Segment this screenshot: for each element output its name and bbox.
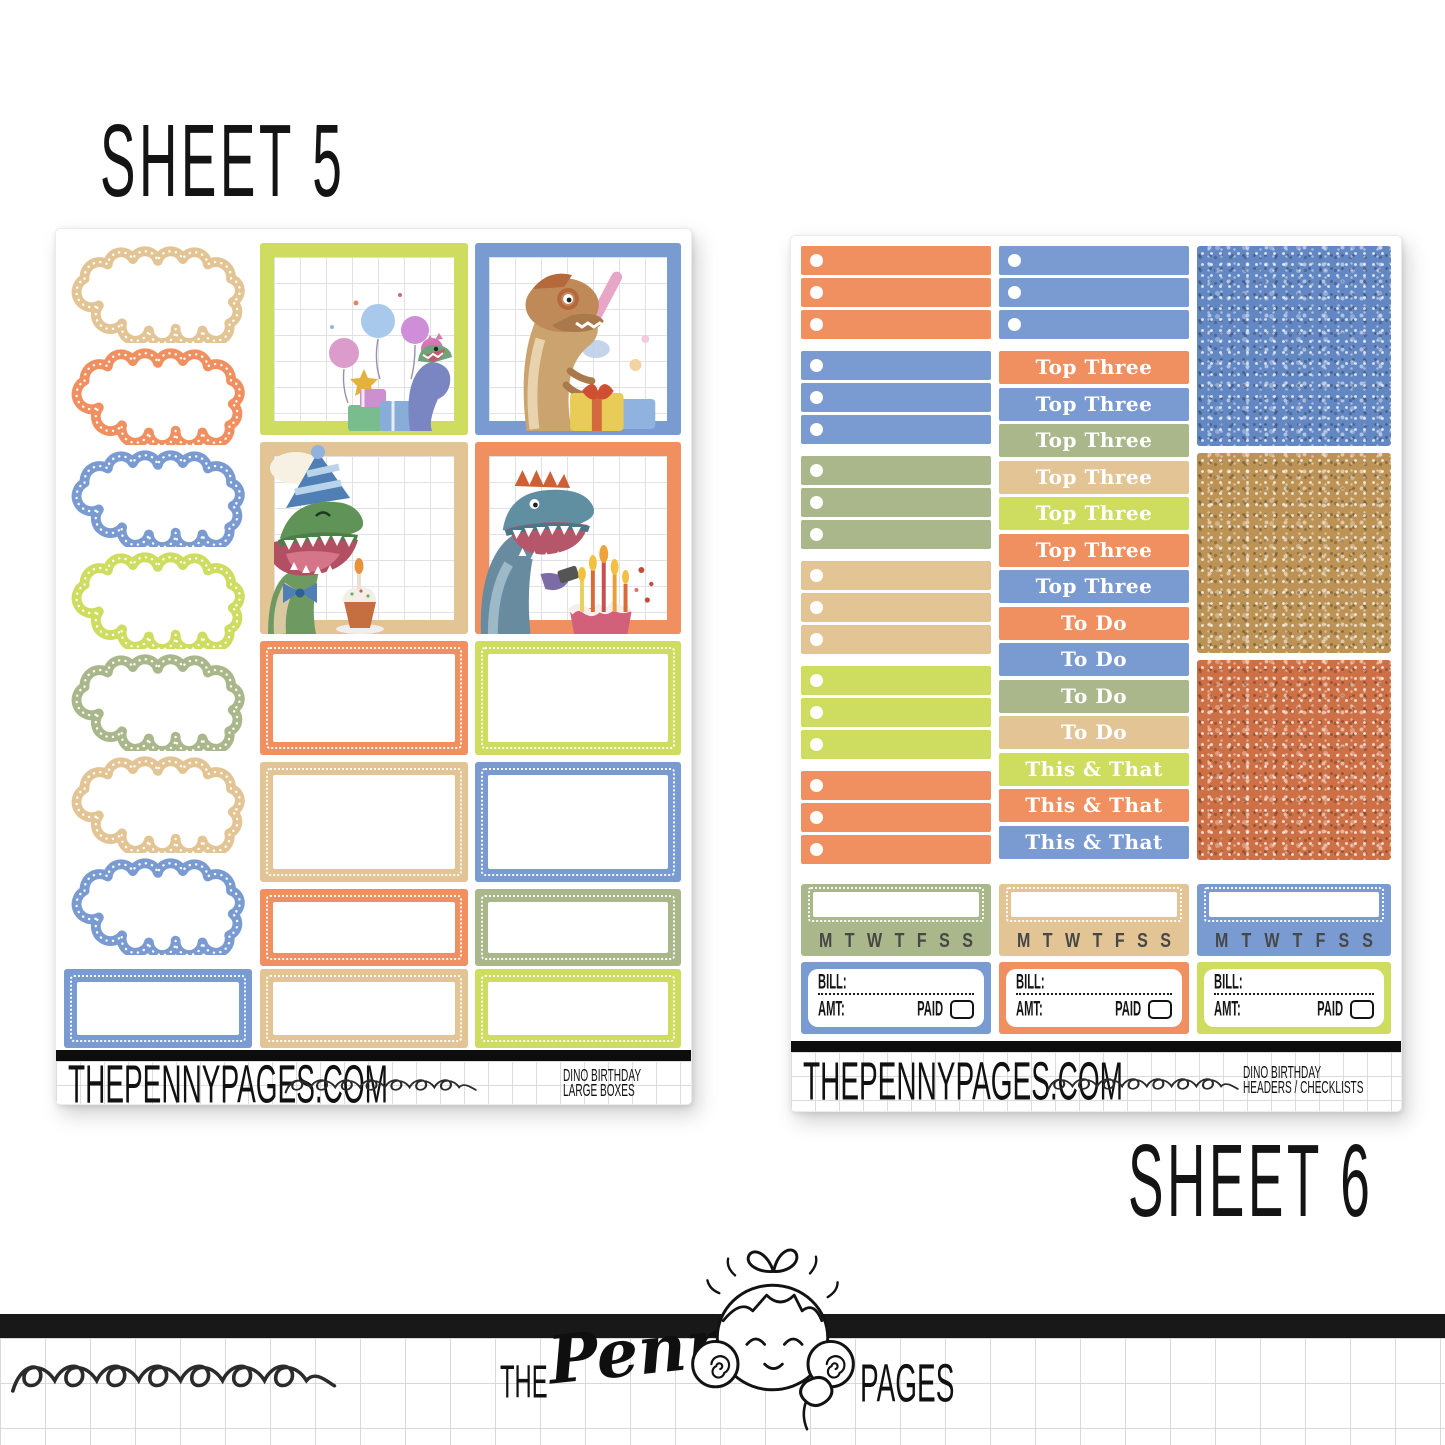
gold-glitter-sticker (1197, 453, 1391, 653)
photo-box-sticker (475, 442, 681, 634)
checklist-row (801, 351, 991, 380)
half-box-writing-area (273, 775, 455, 869)
bill-card: BILL: AMT: PAID (1006, 969, 1182, 1027)
dino-gift-art (475, 243, 681, 435)
header-sticker: To Do (999, 643, 1189, 676)
bullet-dot (810, 601, 823, 614)
checklist-row (801, 310, 991, 339)
header-sticker: This & That (999, 789, 1189, 822)
short-box-writing-area (273, 902, 455, 953)
date-writing-slot (1209, 892, 1379, 917)
half-box-writing-area (273, 654, 455, 742)
cloud-box-sticker (60, 345, 252, 445)
squiggle-doodle (10, 1352, 340, 1404)
dino-partyhat-art (260, 442, 468, 634)
blue-glitter-sticker (1197, 246, 1391, 446)
bullet-dot (810, 779, 823, 792)
checklist-row (801, 625, 991, 654)
header-sticker: Top Three (999, 388, 1189, 421)
checklist-sticker (999, 246, 1189, 339)
cloud-box-sticker (60, 243, 252, 343)
checklist-row (801, 561, 991, 590)
paid-checkbox (950, 1000, 974, 1019)
half-box-sticker (260, 641, 468, 755)
bullet-dot (810, 674, 823, 687)
header-sticker: This & That (999, 826, 1189, 859)
checklist-row (801, 698, 991, 727)
bullet-dot (810, 254, 823, 267)
bullet-dot (810, 318, 823, 331)
orange-glitter-sticker (1197, 660, 1391, 860)
bullet-dot (810, 811, 823, 824)
bill-tracker-sticker: BILL: AMT: PAID (1197, 962, 1391, 1034)
dino-cake-art (475, 442, 681, 634)
sheet5-label: SHEET 5 (100, 118, 450, 205)
checklist-row (801, 383, 991, 412)
bill-tracker-sticker: BILL: AMT: PAID (999, 962, 1189, 1034)
cloud-box-sticker (60, 753, 252, 853)
bullet-dot (810, 359, 823, 372)
bullet-dot (1008, 318, 1021, 331)
bill-label: BILL: (818, 971, 847, 995)
checklist-row (801, 771, 991, 800)
bottom-box-sticker (64, 969, 252, 1048)
header-sticker-stack: Top Three Top Three Top Three Top Three … (999, 351, 1189, 859)
bullet-dot (810, 464, 823, 477)
bill-tracker-sticker: BILL: AMT: PAID (801, 962, 991, 1034)
photo-box-sticker (260, 243, 468, 435)
checklist-row (801, 520, 991, 549)
penny-girl-doodle (686, 1232, 861, 1444)
checklist-row (801, 456, 991, 485)
paid-label: PAID (1317, 997, 1343, 1021)
cloud-box-sticker (60, 447, 252, 547)
header-sticker: To Do (999, 607, 1189, 640)
half-box-sticker (475, 641, 681, 755)
sticker-sheet-5: THEPENNYPAGES.COM DINO BIRTHDAY LARGE BO… (55, 228, 692, 1105)
half-box-writing-area (488, 654, 668, 742)
bullet-dot (810, 569, 823, 582)
date-cover-sticker: MTWTFSS (801, 884, 991, 956)
weekday-letters: MTWTFSS (1009, 933, 1179, 951)
checklist-sticker (801, 771, 991, 864)
squiggle-doodle (1046, 1072, 1241, 1098)
bullet-dot (810, 528, 823, 541)
product-image: SHEET 5 (0, 0, 1445, 1445)
bill-label: BILL: (1214, 971, 1243, 995)
bullet-dot (810, 496, 823, 509)
bottom-box-sticker (475, 969, 681, 1048)
header-sticker: This & That (999, 753, 1189, 786)
sheet-footer-bar (791, 1041, 1401, 1052)
date-cover-sticker: MTWTFSS (999, 884, 1189, 956)
amt-label: AMT: (1214, 997, 1241, 1021)
paid-label: PAID (1115, 997, 1141, 1021)
sheet-title-label: DINO BIRTHDAY HEADERS / CHECKLISTS (1243, 1065, 1393, 1095)
weekday-letters: MTWTFSS (1207, 933, 1381, 951)
dino-balloons-art (260, 243, 468, 435)
amt-label: AMT: (1016, 997, 1043, 1021)
bullet-dot (810, 423, 823, 436)
header-sticker: To Do (999, 716, 1189, 749)
short-box-sticker (260, 889, 468, 966)
paid-checkbox (1350, 1000, 1374, 1019)
checklist-row (801, 803, 991, 832)
checklist-row (801, 488, 991, 517)
header-sticker: Top Three (999, 461, 1189, 494)
checklist-sticker (801, 351, 991, 444)
cloud-box-sticker (60, 651, 252, 751)
short-box-writing-area (488, 902, 668, 953)
checklist-sticker (801, 666, 991, 759)
checklist-row (801, 278, 991, 307)
half-box-sticker (475, 762, 681, 882)
header-sticker: Top Three (999, 497, 1189, 530)
sheet-type: HEADERS / CHECKLISTS (1243, 1078, 1351, 1097)
header-sticker: Top Three (999, 351, 1189, 384)
photo-box-sticker (475, 243, 681, 435)
header-sticker: To Do (999, 680, 1189, 713)
bullet-dot (810, 738, 823, 751)
checklist-row (801, 415, 991, 444)
bottom-box-writing-area (488, 982, 668, 1035)
bullet-dot (810, 391, 823, 404)
sheet-title-label: DINO BIRTHDAY LARGE BOXES (563, 1068, 683, 1098)
checklist-sticker (801, 561, 991, 654)
bullet-dot (810, 706, 823, 719)
date-cover-sticker: MTWTFSS (1197, 884, 1391, 956)
bullet-dot (1008, 286, 1021, 299)
paid-label: PAID (917, 997, 943, 1021)
sheet-footer: THEPENNYPAGES.COM DINO BIRTHDAY LARGE BO… (56, 1061, 691, 1104)
checklist-sticker (801, 246, 991, 339)
checklist-row (999, 310, 1189, 339)
date-writing-slot (813, 892, 979, 917)
half-box-writing-area (488, 775, 668, 869)
sheet5-label-text: SHEET 5 (100, 103, 345, 220)
photo-box-sticker (260, 442, 468, 634)
bullet-dot (810, 633, 823, 646)
bottom-box-sticker (260, 969, 468, 1048)
squiggle-doodle (284, 1073, 479, 1099)
bullet-dot (1008, 254, 1021, 267)
cloud-box-sticker (60, 549, 252, 649)
bottom-box-writing-area (273, 982, 455, 1035)
half-box-sticker (260, 762, 468, 882)
logo-word-pages: PAGES (860, 1362, 995, 1407)
bullet-dot (810, 286, 823, 299)
sheet-type: LARGE BOXES (563, 1081, 649, 1100)
checklist-row (801, 593, 991, 622)
sheet-footer: THEPENNYPAGES.COM DINO BIRTHDAY HEADERS … (791, 1052, 1401, 1111)
checklist-row (999, 246, 1189, 275)
bill-card: BILL: AMT: PAID (1204, 969, 1384, 1027)
sticker-sheet-6: Top Three Top Three Top Three Top Three … (790, 235, 1402, 1112)
checklist-row (801, 246, 991, 275)
cloud-box-sticker (60, 855, 252, 955)
checklist-row (801, 835, 991, 864)
weekday-letters: MTWTFSS (811, 933, 981, 951)
date-writing-slot (1011, 892, 1177, 917)
short-box-sticker (475, 889, 681, 966)
header-sticker: Top Three (999, 570, 1189, 603)
bill-label: BILL: (1016, 971, 1045, 995)
sheet6-label: SHEET 6 (1128, 1138, 1445, 1225)
checklist-row (999, 278, 1189, 307)
bottom-box-writing-area (77, 982, 239, 1035)
amt-label: AMT: (818, 997, 845, 1021)
checklist-row (801, 730, 991, 759)
paid-checkbox (1148, 1000, 1172, 1019)
checklist-sticker (801, 456, 991, 549)
bullet-dot (810, 843, 823, 856)
header-sticker: Top Three (999, 534, 1189, 567)
bill-card: BILL: AMT: PAID (808, 969, 984, 1027)
checklist-row (801, 666, 991, 695)
header-sticker: Top Three (999, 424, 1189, 457)
sheet6-label-text: SHEET 6 (1128, 1123, 1373, 1240)
